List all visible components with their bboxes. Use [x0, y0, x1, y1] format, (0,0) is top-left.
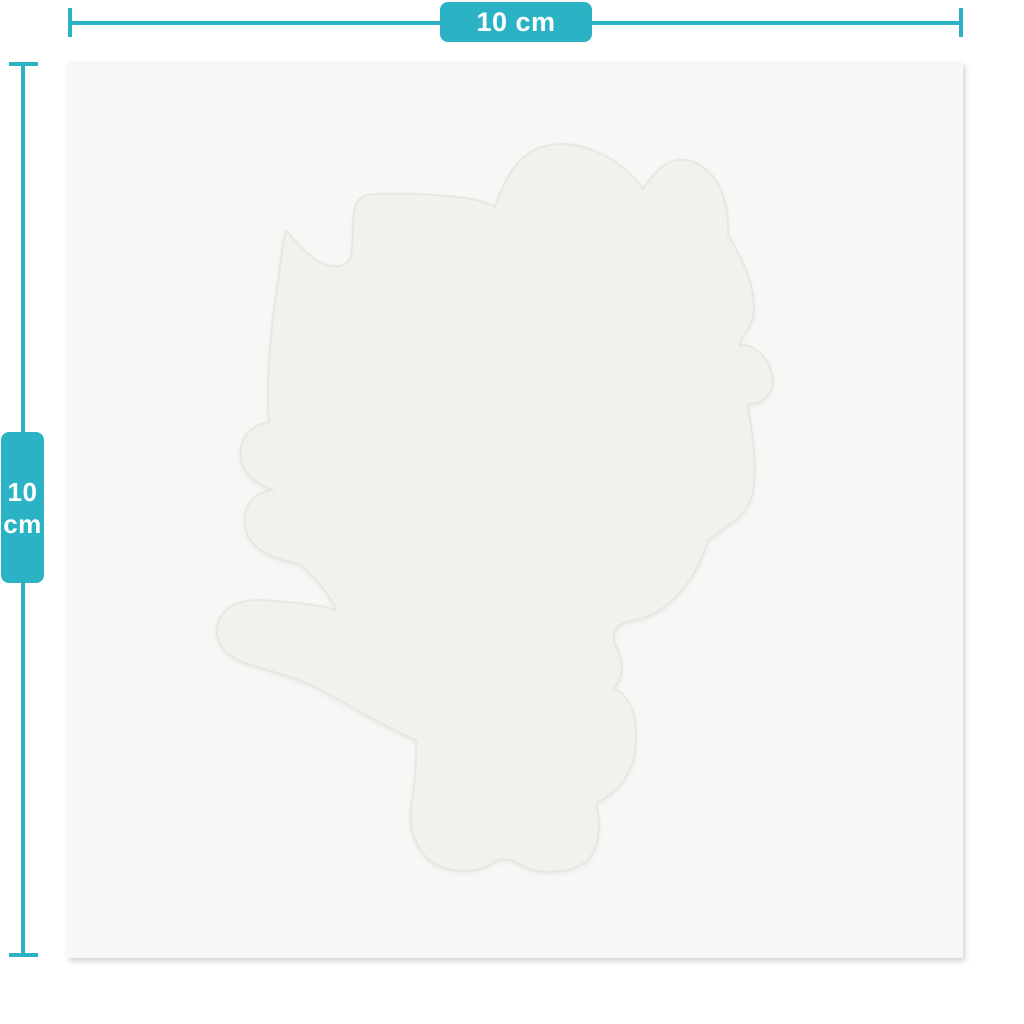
die-cut-character-silhouette-icon — [67, 62, 963, 958]
ruler-end-cap-bottom-icon — [9, 953, 38, 957]
width-dimension-label: 10 cm — [476, 7, 555, 38]
ruler-end-cap-right-icon — [959, 8, 963, 37]
height-dimension-unit: cm — [3, 508, 42, 540]
width-dimension-badge: 10 cm — [440, 2, 592, 42]
height-dimension-badge: 10 cm — [1, 432, 44, 583]
product-dimension-mockup: 10 cm 10 cm — [0, 0, 1024, 1024]
sticker-sheet — [67, 62, 963, 958]
height-dimension-value: 10 — [8, 476, 38, 508]
ruler-end-cap-left-icon — [68, 8, 72, 37]
ruler-end-cap-top-icon — [9, 62, 38, 66]
